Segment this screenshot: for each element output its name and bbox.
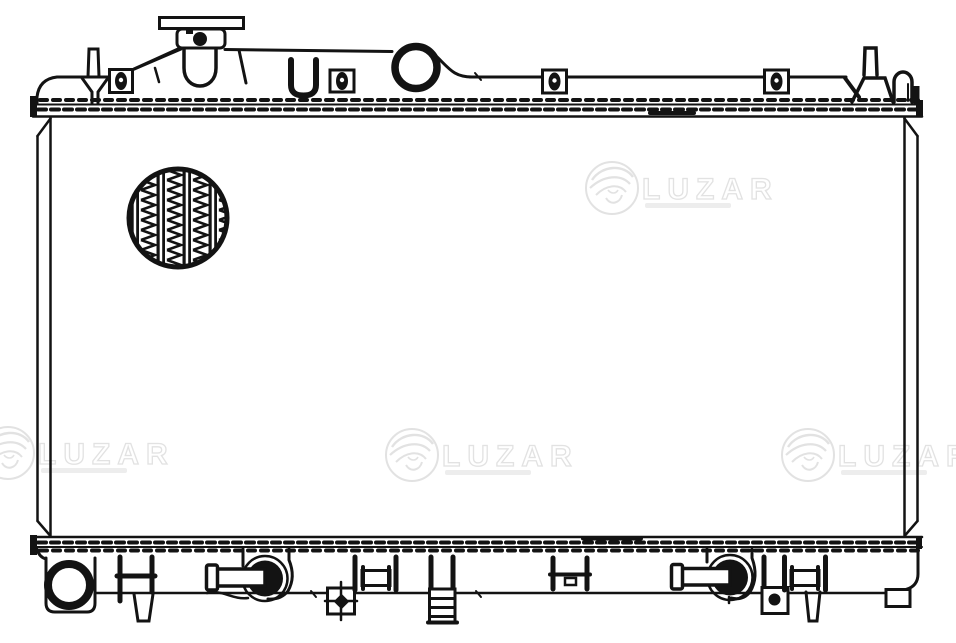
filler-neck-opening xyxy=(395,47,437,89)
top-tank-right-end xyxy=(845,48,920,105)
bottom-bracket-h4 xyxy=(785,557,826,621)
mount-bracket-top-3 xyxy=(543,70,567,93)
watermark-subtext-bar xyxy=(41,468,127,473)
outlet-pipe xyxy=(678,569,730,586)
watermark-wordmark: LUZAR xyxy=(838,440,956,473)
bottom-crimp-strip xyxy=(30,535,922,555)
bracket-tab xyxy=(134,594,153,621)
watermark-wordmark: LUZAR xyxy=(642,173,779,206)
mount-bracket-top-2 xyxy=(330,70,354,92)
left-side-frame xyxy=(38,118,51,537)
drawing-layer xyxy=(30,18,923,623)
top-diagonal-tick xyxy=(155,68,159,82)
watermark-subtext-bar xyxy=(841,470,927,475)
top-right-tab xyxy=(864,48,877,75)
outlet-fitting xyxy=(672,549,756,603)
luzar-emblem-icon xyxy=(586,162,638,214)
outlet-pipe-flange xyxy=(672,565,683,590)
bottom-bracket-h3 xyxy=(550,558,590,589)
bottom-right-foot xyxy=(886,590,910,607)
mount-bracket-top-1 xyxy=(110,70,133,93)
top-tank xyxy=(30,18,923,118)
bolt-hole-icon xyxy=(769,594,781,606)
bottom-tank xyxy=(30,535,922,623)
inlet-pipe xyxy=(213,569,265,586)
cap-plate xyxy=(160,18,244,29)
top-crimp-strip xyxy=(30,96,923,117)
u-bracket xyxy=(291,60,316,96)
bottom-bracket-h1 xyxy=(117,557,155,621)
right-end-arch xyxy=(894,72,912,102)
top-left-tab xyxy=(88,49,99,77)
cap-bolt-icon xyxy=(193,32,207,46)
luzar-emblem-icon xyxy=(782,429,834,481)
bottom-bracket-h2 xyxy=(355,557,396,590)
watermark-subtext-bar xyxy=(645,203,731,208)
drain-ring xyxy=(48,564,90,606)
luzar-emblem-icon xyxy=(0,427,34,479)
filler-cap xyxy=(134,18,246,87)
screw-bracket xyxy=(325,582,357,620)
watermark-bottom-right: LUZAR xyxy=(782,429,956,481)
watermark-top-right: LUZAR xyxy=(586,162,779,214)
watermark-bottom-center: LUZAR xyxy=(386,429,579,481)
watermark-wordmark: LUZAR xyxy=(442,440,579,473)
watermark-subtext-bar xyxy=(445,470,531,475)
inlet-pipe-flange xyxy=(207,565,218,590)
watermark-wordmark: LUZAR xyxy=(38,438,175,471)
luzar-emblem-icon xyxy=(386,429,438,481)
core-fin-detail-circle xyxy=(129,169,227,267)
top-raised-edge xyxy=(225,50,392,52)
ladder-bracket xyxy=(428,557,457,623)
watermark-bottom-left: LUZAR xyxy=(0,427,175,479)
bracket-tab xyxy=(806,592,820,621)
filler-dome xyxy=(184,49,216,86)
mount-bracket-top-4 xyxy=(765,70,789,93)
radiator-technical-drawing: LUZAR LUZAR LUZAR LUZAR xyxy=(0,0,956,643)
bottom-right-curve xyxy=(906,549,918,590)
